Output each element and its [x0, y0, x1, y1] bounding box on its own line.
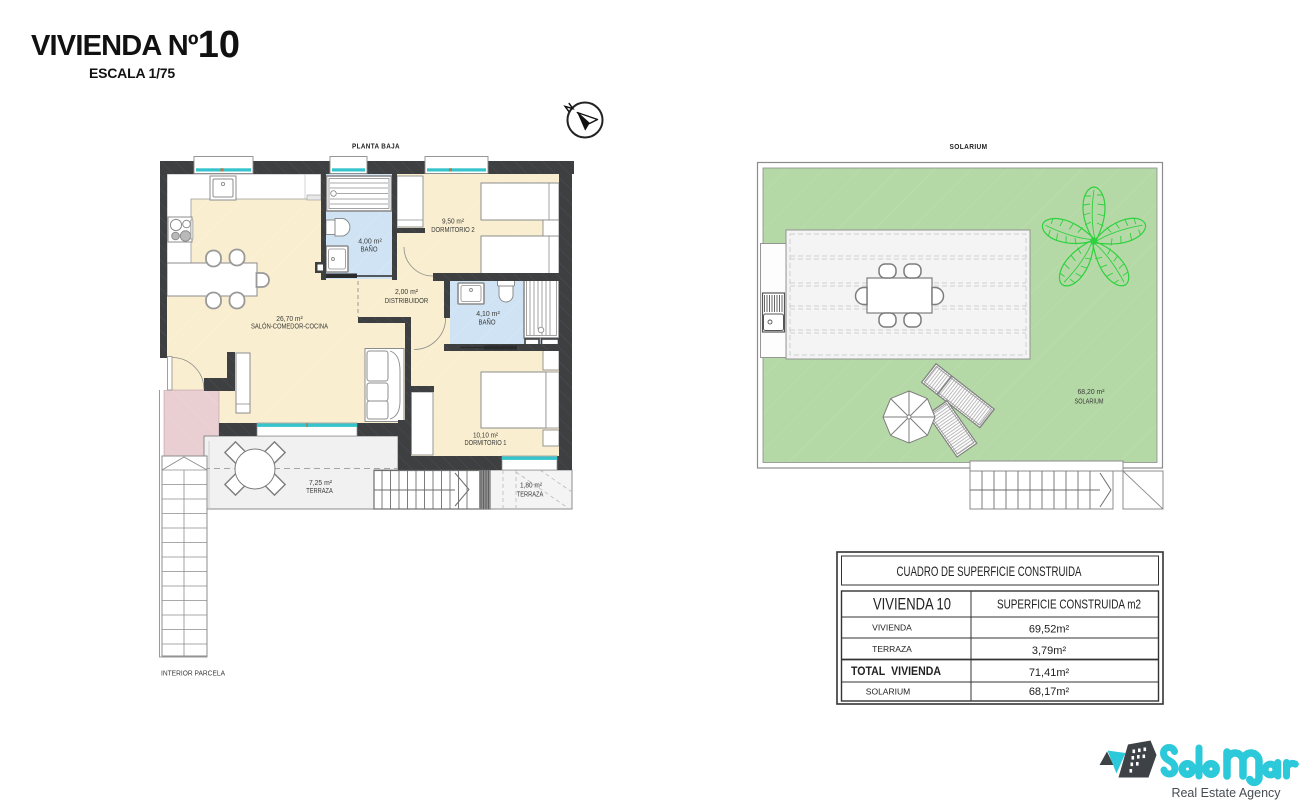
svg-text:68,20 m²: 68,20 m²: [1078, 389, 1106, 396]
svg-text:9,50 m²: 9,50 m²: [442, 219, 465, 226]
svg-text:4,00 m²: 4,00 m²: [358, 239, 382, 246]
svg-text:ESCALA 1/75: ESCALA 1/75: [89, 65, 175, 81]
svg-text:PLANTA BAJA: PLANTA BAJA: [352, 144, 400, 151]
svg-text:3,79m²: 3,79m²: [1032, 645, 1067, 657]
svg-text:TERRAZA: TERRAZA: [517, 492, 544, 499]
svg-text:Real Estate Agency: Real Estate Agency: [1171, 786, 1281, 800]
svg-text:CUADRO DE SUPERFICIE CONSTRUID: CUADRO DE SUPERFICIE CONSTRUIDA: [897, 563, 1082, 579]
svg-text:26,70 m²: 26,70 m²: [276, 316, 303, 323]
svg-text:71,41m²: 71,41m²: [1029, 667, 1070, 679]
svg-text:SALÓN-COMEDOR-COCINA: SALÓN-COMEDOR-COCINA: [251, 321, 328, 330]
svg-text:68,17m²: 68,17m²: [1029, 686, 1070, 698]
svg-text:69,52m²: 69,52m²: [1029, 624, 1070, 636]
svg-text:DORMITORIO 2: DORMITORIO 2: [431, 227, 475, 234]
svg-text:VIVIENDA: VIVIENDA: [872, 623, 912, 633]
svg-text:4,10 m²: 4,10 m²: [476, 311, 500, 318]
svg-text:BAÑO: BAÑO: [361, 245, 378, 254]
svg-text:TOTAL VIVIENDA: TOTAL VIVIENDA: [851, 666, 941, 678]
svg-text:TERRAZA: TERRAZA: [872, 644, 912, 654]
svg-text:VIVIENDA Nº10: VIVIENDA Nº10: [31, 24, 240, 66]
svg-text:SOLARIUM: SOLARIUM: [950, 144, 988, 151]
svg-text:INTERIOR PARCELA: INTERIOR PARCELA: [161, 671, 225, 678]
svg-text:SUPERFICIE CONSTRUIDA m2: SUPERFICIE CONSTRUIDA m2: [997, 598, 1141, 612]
svg-text:2,00 m²: 2,00 m²: [395, 289, 419, 296]
svg-text:7,25 m²: 7,25 m²: [309, 480, 333, 487]
svg-text:TERRAZA: TERRAZA: [306, 488, 333, 495]
svg-text:SOLARIUM: SOLARIUM: [1075, 398, 1104, 405]
svg-text:10,10 m²: 10,10 m²: [473, 432, 499, 439]
svg-text:DISTRIBUIDOR: DISTRIBUIDOR: [385, 298, 429, 305]
svg-text:SOLARIUM: SOLARIUM: [866, 687, 910, 697]
svg-text:BAÑO: BAÑO: [479, 318, 496, 327]
svg-text:VIVIENDA 10: VIVIENDA 10: [873, 596, 951, 614]
svg-text:DORMITORIO 1: DORMITORIO 1: [465, 440, 507, 447]
svg-text:1,80 m²: 1,80 m²: [520, 483, 543, 490]
